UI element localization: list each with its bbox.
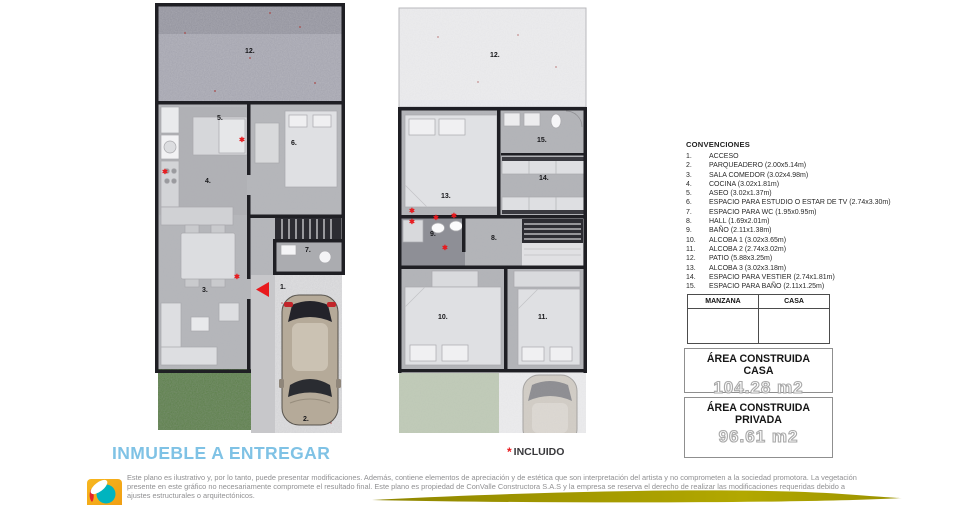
legend-item: 9.BAÑO (2.11x1.38m) xyxy=(686,226,946,235)
room-label-estudio: 6. xyxy=(291,140,297,147)
area-construida-casa-box: ÁREA CONSTRUIDA CASA 104.28 m2 xyxy=(684,348,833,393)
room-label-aseo: 5. xyxy=(217,115,223,122)
legend-item-label: ACCESO xyxy=(709,153,739,160)
stairs xyxy=(275,218,341,240)
legend-item-label: BAÑO (2.11x1.38m) xyxy=(709,227,772,234)
legend-item-label: PATIO (5.88x3.25m) xyxy=(709,255,772,262)
legend-item-num: 4. xyxy=(686,180,709,189)
legend-item-label: ALCOBA 2 (2.74x3.02m) xyxy=(709,246,786,253)
included-marker: ✱ xyxy=(162,169,168,176)
legend: CONVENCIONES 1.ACCESO 2.PARQUEADERO (2.0… xyxy=(686,140,946,291)
legend-title: CONVENCIONES xyxy=(686,140,946,149)
room-label-bano: 9. xyxy=(430,231,436,238)
legend-item-num: 1. xyxy=(686,152,709,161)
included-marker: ✱ xyxy=(409,208,415,215)
legend-item: 14.ESPACIO PARA VESTIER (2.74x1.81m) xyxy=(686,273,946,282)
legend-item-label: COCINA (3.02x1.81m) xyxy=(709,181,779,188)
legend-item-num: 5. xyxy=(686,189,709,198)
legend-item-label: ALCOBA 3 (3.02x3.18m) xyxy=(709,265,786,272)
room-label-sala: 3. xyxy=(202,287,208,294)
kitchen-counter xyxy=(161,207,233,225)
entry-walkway xyxy=(251,275,275,433)
stairs xyxy=(522,219,583,266)
room-label-alcoba1: 10. xyxy=(438,314,448,321)
legend-item-label: ASEO (3.02x1.37m) xyxy=(709,190,772,197)
legend-item: 2.PARQUEADERO (2.00x5.14m) xyxy=(686,161,946,170)
room-label-wc: 7. xyxy=(305,247,311,254)
dining-table xyxy=(181,225,235,287)
legend-item-label: ESPACIO PARA WC (1.95x0.95m) xyxy=(709,209,817,216)
room-label-patio: 12. xyxy=(245,48,255,55)
legend-item-num: 9. xyxy=(686,226,709,235)
legend-item: 11.ALCOBA 2 (2.74x3.02m) xyxy=(686,245,946,254)
included-marker: ✱ xyxy=(451,213,457,220)
first-floor-plan: 12. 5. 6. 4. 3. 7. 1. 2. ✱ ✱ ✱ xyxy=(155,3,345,433)
room-label-acceso: 1. xyxy=(280,284,286,291)
included-marker: ✱ xyxy=(234,274,240,281)
legend-item: 5.ASEO (3.02x1.37m) xyxy=(686,189,946,198)
table-cell-manzana xyxy=(688,309,759,344)
included-marker: ✱ xyxy=(433,215,439,222)
legend-item: 8.HALL (1.69x2.01m) xyxy=(686,217,946,226)
room-label-alcoba3: 13. xyxy=(441,193,451,200)
room-label-vestier: 14. xyxy=(539,175,549,182)
legend-item-label: ESPACIO PARA ESTUDIO O ESTAR DE TV (2.74… xyxy=(709,199,891,206)
legend-item-label: HALL (1.69x2.01m) xyxy=(709,218,769,225)
legend-item-num: 3. xyxy=(686,171,709,180)
table-cell-casa xyxy=(759,309,830,344)
legend-item-label: ESPACIO PARA BAÑO (2.11x1.25m) xyxy=(709,283,824,290)
legend-item: 13.ALCOBA 3 (3.02x3.18m) xyxy=(686,264,946,273)
faded-ground-floor xyxy=(399,373,586,433)
legend-item-num: 8. xyxy=(686,217,709,226)
area-privada-value: 96.61 m2 xyxy=(685,427,832,447)
page-title: INMUEBLE A ENTREGAR xyxy=(112,443,330,464)
legend-list: 1.ACCESO 2.PARQUEADERO (2.00x5.14m) 3.SA… xyxy=(686,152,946,291)
included-label: INCLUIDO xyxy=(514,446,565,458)
footer-swoosh xyxy=(372,489,902,504)
car-topview xyxy=(279,295,341,425)
included-legend: *INCLUIDO xyxy=(507,445,564,459)
legend-item: 10.ALCOBA 1 (3.02x3.65m) xyxy=(686,236,946,245)
company-logo xyxy=(87,479,122,505)
manzana-casa-table: MANZANA CASA xyxy=(687,294,830,344)
legend-item: 3.SALA COMEDOR (3.02x4.98m) xyxy=(686,171,946,180)
legend-item-label: ALCOBA 1 (3.02x3.65m) xyxy=(709,237,786,244)
second-floor-plan: 12. 15. 14. 13. 9. 8. 10. 11. ✱ ✱ ✱ ✱ ✱ xyxy=(398,7,587,433)
faded-car xyxy=(523,375,577,433)
room-label-hall: 8. xyxy=(491,235,497,242)
aseo-closet xyxy=(193,117,247,155)
table-header-manzana: MANZANA xyxy=(688,295,759,309)
legend-item: 12.PATIO (5.88x3.25m) xyxy=(686,254,946,263)
legend-item-num: 12. xyxy=(686,254,709,263)
page: 12. 5. 6. 4. 3. 7. 1. 2. ✱ ✱ ✱ xyxy=(0,0,974,505)
area-construida-privada-box: ÁREA CONSTRUIDA PRIVADA 96.61 m2 xyxy=(684,397,833,458)
legend-item-num: 15. xyxy=(686,282,709,291)
kitchen-appliances xyxy=(161,107,179,207)
bedroom3-bed xyxy=(405,115,497,207)
included-marker: ✱ xyxy=(409,219,415,226)
legend-item-num: 6. xyxy=(686,198,709,207)
legend-item-num: 14. xyxy=(686,273,709,282)
legend-item: 15.ESPACIO PARA BAÑO (2.11x1.25m) xyxy=(686,282,946,291)
grass-area xyxy=(158,369,251,430)
second-floor-plan-drawing xyxy=(398,7,587,433)
legend-item-num: 10. xyxy=(686,236,709,245)
legend-item: 1.ACCESO xyxy=(686,152,946,161)
room-label-alcoba2: 11. xyxy=(538,314,547,321)
included-marker: ✱ xyxy=(239,137,245,144)
legend-item: 6.ESPACIO PARA ESTUDIO O ESTAR DE TV (2.… xyxy=(686,198,946,207)
area-casa-title: ÁREA CONSTRUIDA CASA xyxy=(685,352,832,377)
room-label-parqueadero: 2. xyxy=(303,416,309,423)
room-label-cocina: 4. xyxy=(205,178,211,185)
room-label-patio: 12. xyxy=(490,52,500,59)
room-label-bano-esp: 15. xyxy=(537,137,547,144)
included-asterisk: * xyxy=(507,445,512,459)
legend-item: 4.COCINA (3.02x1.81m) xyxy=(686,180,946,189)
included-marker: ✱ xyxy=(442,245,448,252)
legend-item-num: 2. xyxy=(686,161,709,170)
table-header-casa: CASA xyxy=(759,295,830,309)
first-floor-plan-drawing xyxy=(155,3,345,433)
legend-item-num: 13. xyxy=(686,264,709,273)
area-casa-value: 104.28 m2 xyxy=(685,378,832,398)
legend-item-label: ESPACIO PARA VESTIER (2.74x1.81m) xyxy=(709,274,835,281)
legend-item-label: PARQUEADERO (2.00x5.14m) xyxy=(709,162,806,169)
legend-item: 7.ESPACIO PARA WC (1.95x0.95m) xyxy=(686,208,946,217)
legend-item-num: 11. xyxy=(686,245,709,254)
legend-item-num: 7. xyxy=(686,208,709,217)
area-privada-title: ÁREA CONSTRUIDA PRIVADA xyxy=(685,401,832,426)
legend-item-label: SALA COMEDOR (3.02x4.98m) xyxy=(709,172,808,179)
